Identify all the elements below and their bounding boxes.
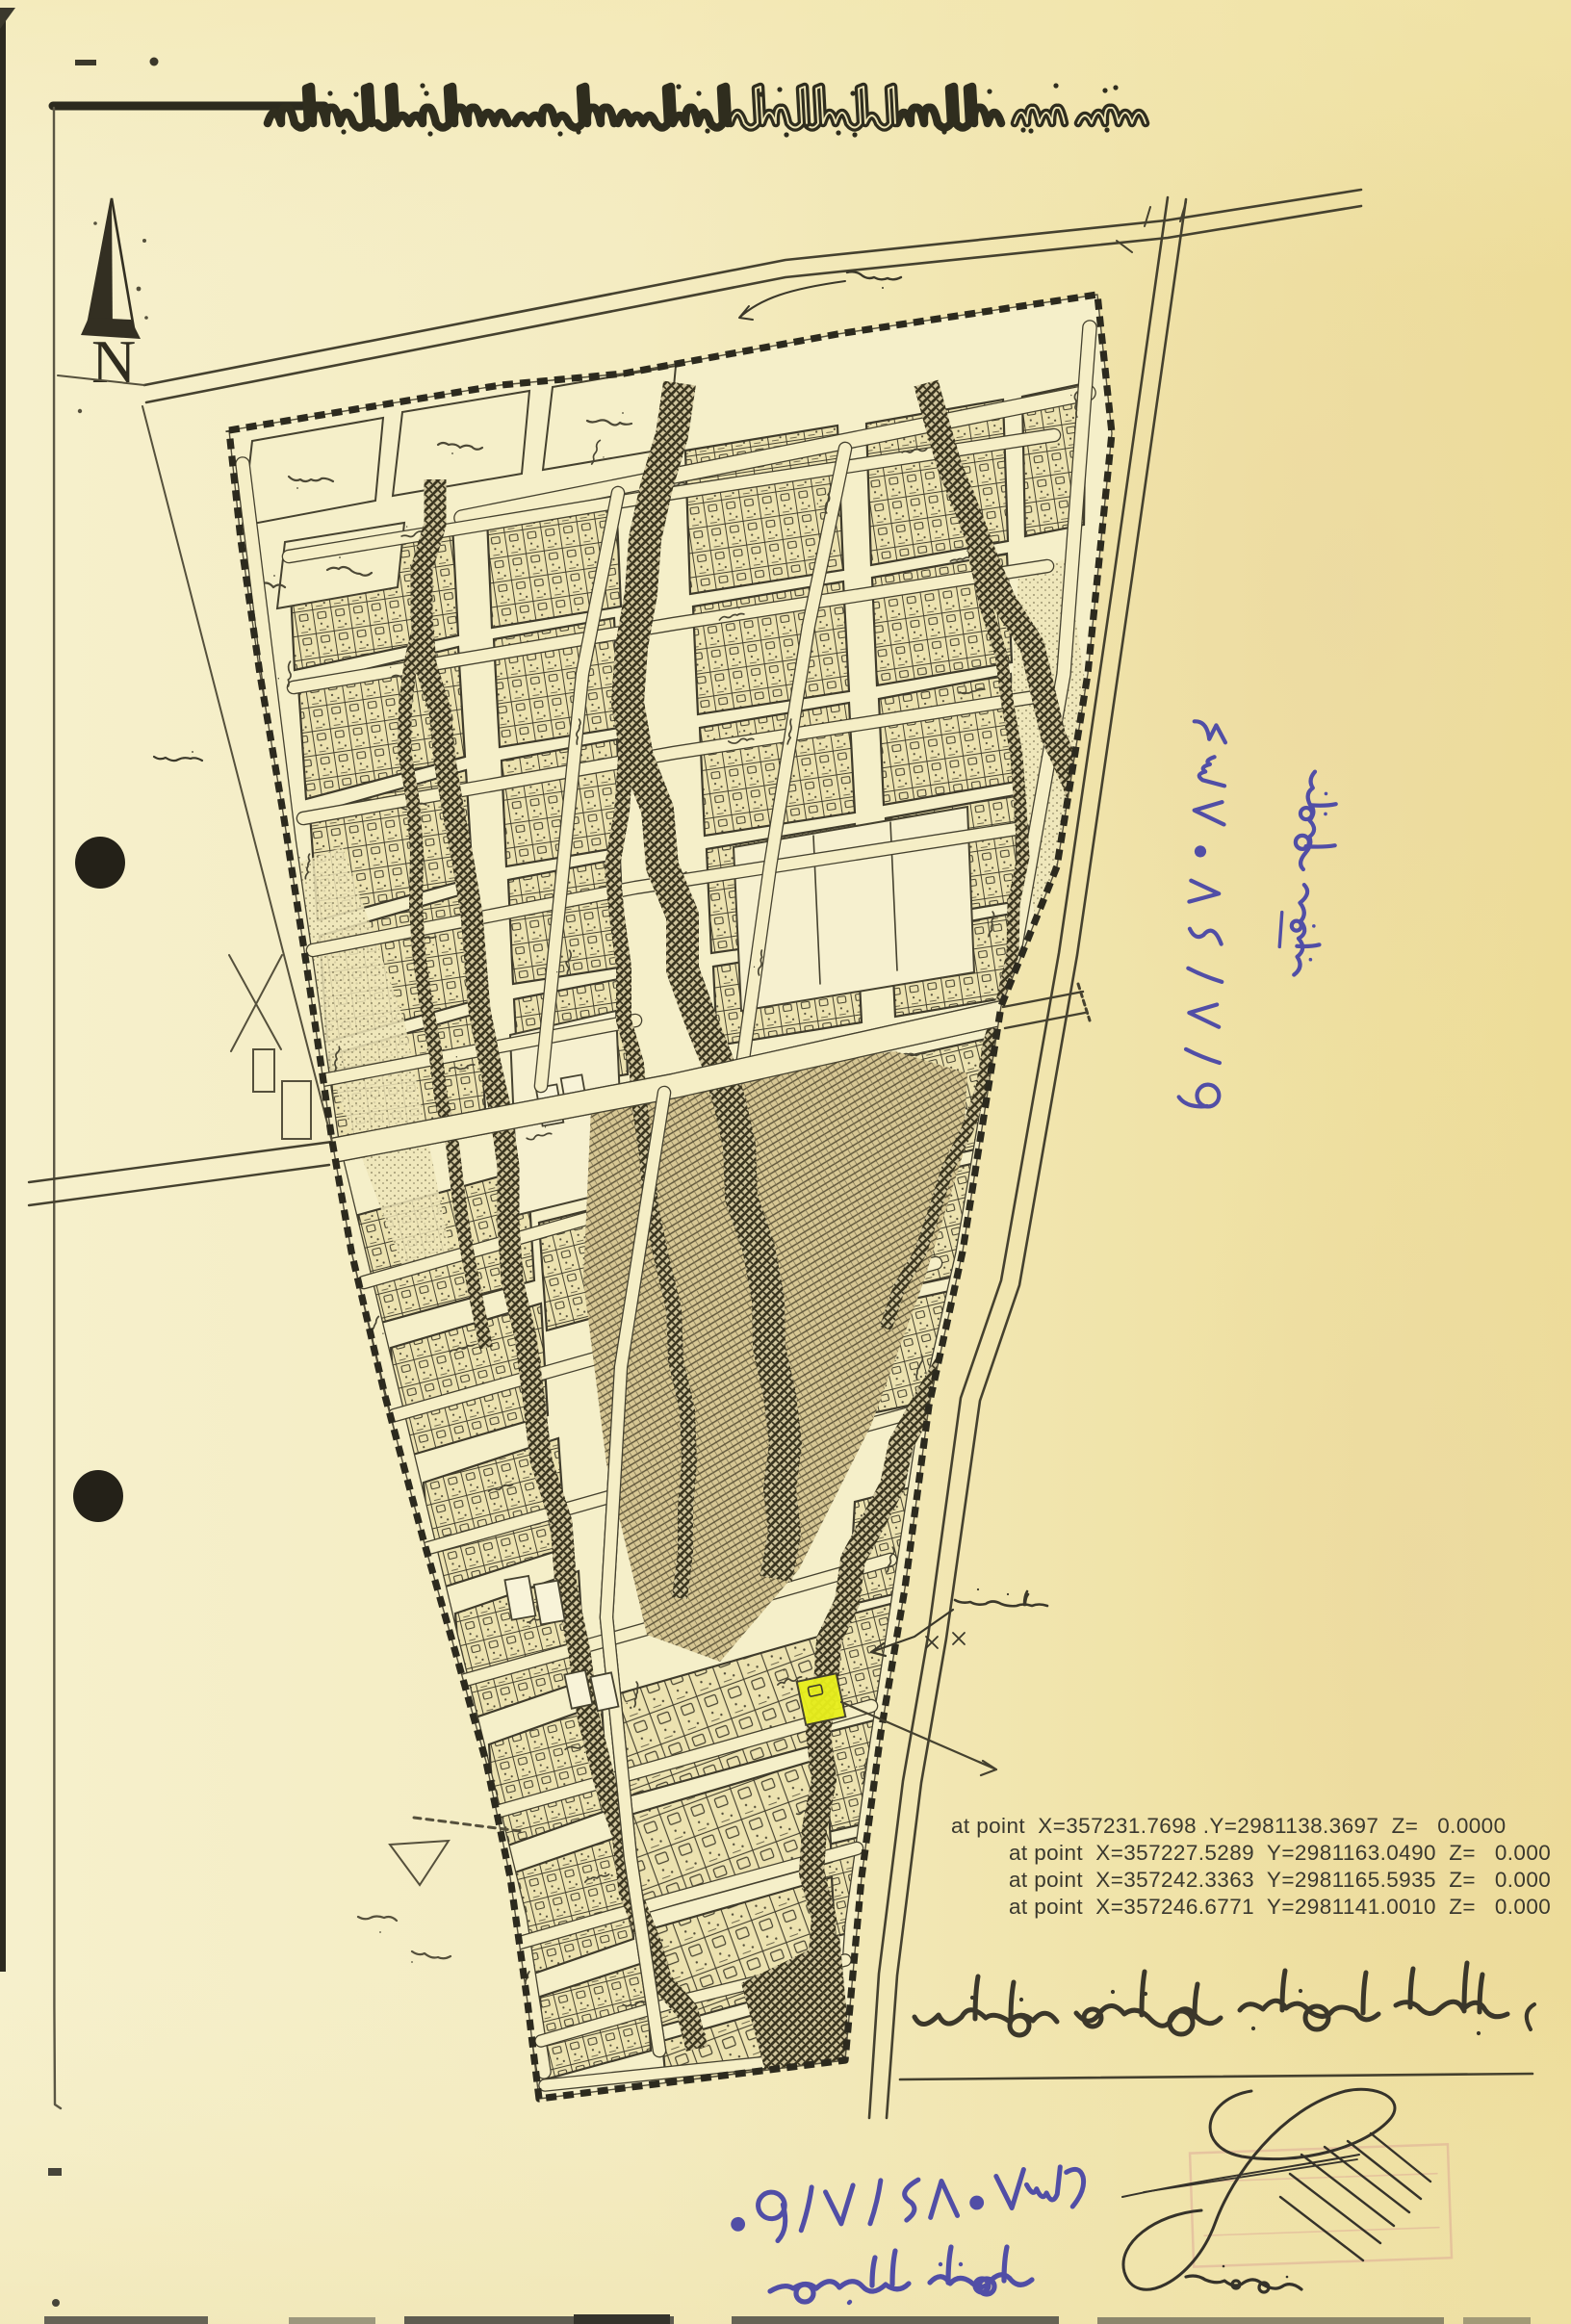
svg-text:N: N bbox=[91, 327, 136, 396]
svg-text:at point X=357246.6771 Y=298: at point X=357246.6771 Y=2981141.0010 Z=… bbox=[1009, 1895, 1551, 1919]
svg-text:at point X=357231.7698 .Y=298: at point X=357231.7698 .Y=2981138.3697 Z… bbox=[951, 1814, 1506, 1838]
svg-text:at point X=357242.3363 Y=298: at point X=357242.3363 Y=2981165.5935 Z=… bbox=[1009, 1868, 1551, 1892]
svg-text:at point X=357227.5289 Y=298: at point X=357227.5289 Y=2981163.0490 Z=… bbox=[1009, 1841, 1551, 1865]
